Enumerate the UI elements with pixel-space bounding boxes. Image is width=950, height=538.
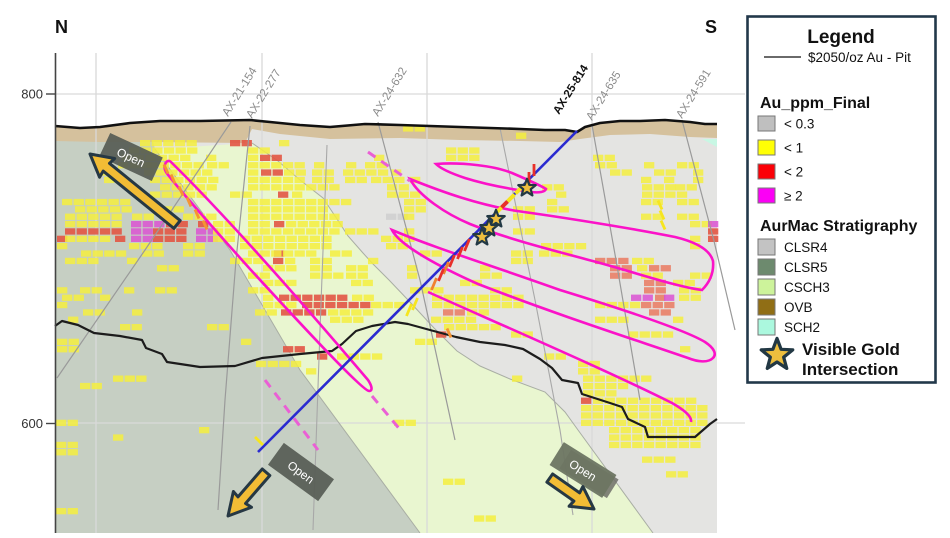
svg-text:600: 600 — [21, 416, 43, 431]
svg-text:N: N — [55, 17, 68, 37]
svg-text:$2050/oz Au - Pit: $2050/oz Au - Pit — [808, 50, 911, 65]
svg-text:SCH2: SCH2 — [784, 320, 820, 335]
svg-text:S: S — [705, 17, 717, 37]
svg-text:< 0.3: < 0.3 — [784, 117, 814, 132]
svg-text:Au_ppm_Final: Au_ppm_Final — [760, 95, 870, 112]
svg-text:≥ 2: ≥ 2 — [784, 189, 803, 204]
svg-text:CSCH3: CSCH3 — [784, 280, 830, 295]
svg-text:AurMac Stratigraphy: AurMac Stratigraphy — [760, 218, 917, 235]
svg-text:CLSR4: CLSR4 — [784, 240, 828, 255]
svg-text:Intersection: Intersection — [802, 360, 898, 379]
svg-text:< 2: < 2 — [784, 165, 803, 180]
svg-text:< 1: < 1 — [784, 141, 803, 156]
svg-text:OVB: OVB — [784, 300, 813, 315]
svg-text:800: 800 — [21, 87, 43, 102]
svg-text:Legend: Legend — [807, 27, 875, 48]
svg-text:CLSR5: CLSR5 — [784, 260, 828, 275]
svg-text:Visible Gold: Visible Gold — [802, 340, 900, 359]
